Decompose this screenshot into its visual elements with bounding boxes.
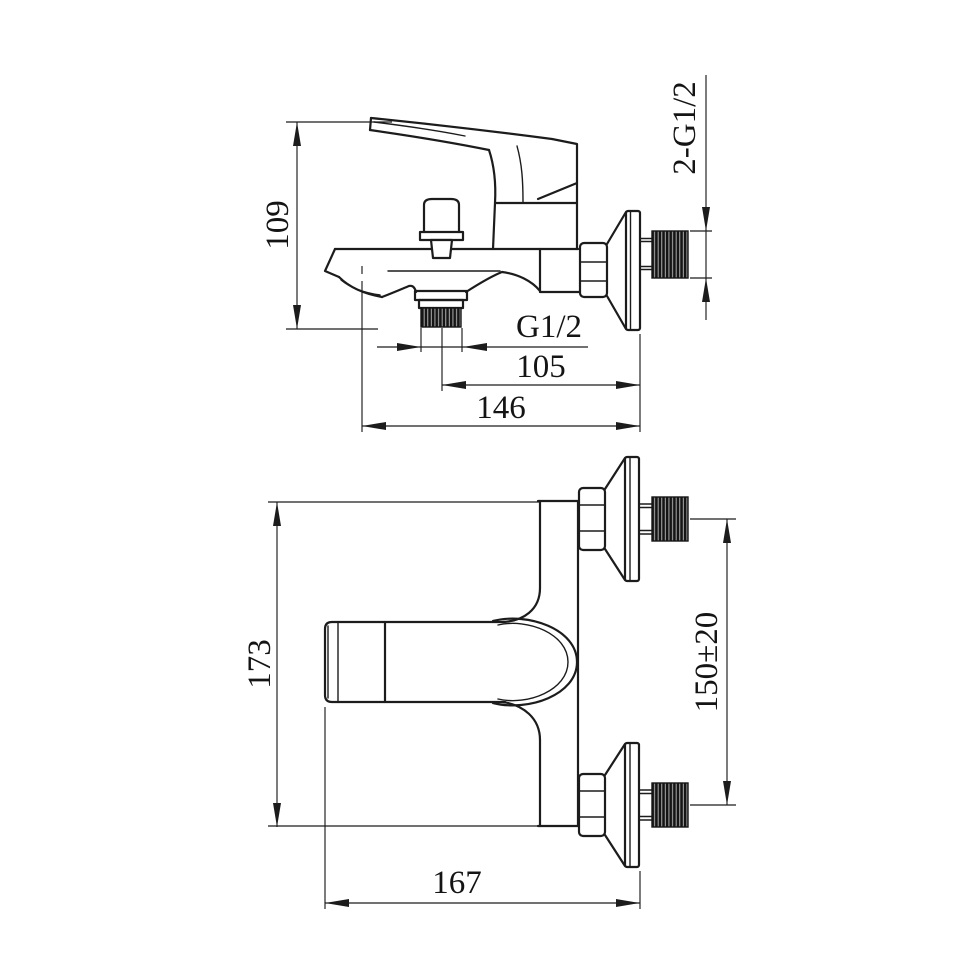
dim-body-height-173: 173 xyxy=(242,502,540,827)
wall-union-top xyxy=(579,457,688,581)
mixer-body xyxy=(493,183,577,249)
dim-text-2g12: 2-G1/2 xyxy=(667,81,703,175)
dim-text-g12: G1/2 xyxy=(516,309,582,345)
dim-inlet-thread: 2-G1/2 xyxy=(667,75,712,320)
dim-text-146: 146 xyxy=(476,390,526,426)
handle-lever xyxy=(370,118,577,203)
wall-union-side xyxy=(580,211,688,330)
body-column xyxy=(503,501,578,826)
technical-drawing-sheet: 109 G1/2 105 146 2-G1/2 xyxy=(0,0,973,971)
shower-outlet-thread xyxy=(415,291,467,327)
dim-height-109: 109 xyxy=(260,122,392,329)
front-view: 173 150±20 167 xyxy=(242,457,736,909)
handle-front xyxy=(325,619,577,706)
dim-text-173: 173 xyxy=(242,639,278,689)
dim-inlet-spacing: 150±20 xyxy=(689,519,736,805)
dim-text-105: 105 xyxy=(516,349,566,385)
dim-text-167: 167 xyxy=(432,865,482,901)
dim-outlet-thread: G1/2 xyxy=(377,309,588,352)
faucet-dimension-drawing: 109 G1/2 105 146 2-G1/2 xyxy=(0,0,973,971)
wall-union-bottom xyxy=(579,743,688,867)
spout xyxy=(325,249,580,297)
dim-text-150-20: 150±20 xyxy=(689,612,725,713)
side-view: 109 G1/2 105 146 2-G1/2 xyxy=(260,75,712,432)
dim-width-167: 167 xyxy=(325,707,640,909)
dim-text-109: 109 xyxy=(260,200,296,250)
